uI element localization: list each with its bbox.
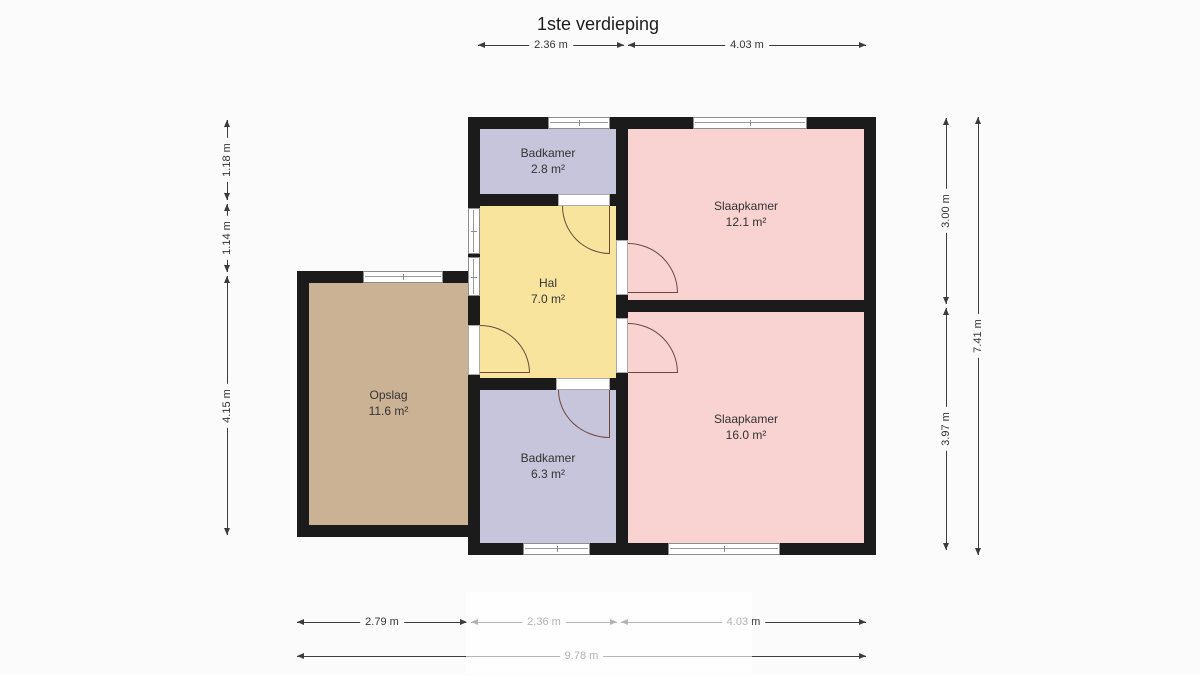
window-badkamer-top (548, 117, 610, 129)
wall-opslag-bottom (297, 525, 468, 537)
dimension-label: 2.79 m (360, 616, 404, 628)
room-area: 12.1 m² (726, 215, 767, 231)
room-name: Slaapkamer (714, 412, 778, 428)
room-area: 7.0 m² (531, 292, 565, 308)
window-hal-left-upper (468, 208, 480, 254)
dimension-right-1: 3.00 m (946, 118, 947, 304)
dimension-left-3: 4.15 m (227, 276, 228, 535)
dimension-left-2: 1.14 m (227, 204, 228, 272)
watermark-overlay (466, 592, 752, 674)
room-area: 16.0 m² (726, 428, 767, 444)
door-opening-hal-badkamer-bottom (556, 378, 610, 390)
dimension-right-2: 3.97 m (946, 308, 947, 550)
room-name: Slaapkamer (714, 199, 778, 215)
dimension-label: 1.18 m (221, 138, 233, 182)
room-opslag: Opslag 11.6 m² (309, 283, 468, 525)
wall-exterior-top (468, 117, 876, 129)
wall-exterior-right (864, 117, 876, 555)
dimension-label: 4.03 m (725, 39, 769, 51)
room-name: Opslag (369, 388, 407, 404)
window-hal-left-lower (468, 257, 480, 296)
dimension-top-left: 2.36 m (478, 45, 624, 46)
dimension-right-total: 7.41 m (978, 117, 979, 555)
dimension-left-1: 1.18 m (227, 120, 228, 200)
dimension-bottom-1: 2.79 m (297, 622, 467, 623)
dimension-label: 2.36 m (529, 39, 573, 51)
dimension-label: 4.15 m (221, 384, 233, 428)
page-title: 1ste verdieping (418, 14, 778, 35)
room-name: Badkamer (521, 451, 576, 467)
door-opening-hal-slaapkamer-bottom (616, 318, 628, 373)
dimension-top-right: 4.03 m (628, 45, 866, 46)
room-area: 6.3 m² (531, 467, 565, 483)
window-opslag-top (363, 271, 443, 283)
room-badkamer-top: Badkamer 2.8 m² (480, 129, 616, 194)
room-area: 2.8 m² (531, 162, 565, 178)
door-opening-hal-badkamer-top (558, 194, 610, 206)
door-opening-hal-opslag (468, 325, 480, 375)
dimension-label: 3.97 m (940, 407, 952, 451)
floor-plan: 1ste verdieping Badkamer 2.8 m² Slaapkam… (0, 0, 1200, 675)
dimension-label: 7.41 m (972, 314, 984, 358)
door-opening-hal-slaapkamer-top (616, 240, 628, 295)
wall-between-bedrooms (628, 300, 864, 312)
room-name: Hal (539, 276, 557, 292)
room-area: 11.6 m² (369, 404, 409, 420)
wall-opslag-left (297, 271, 309, 537)
window-slaapkamer-bottom (668, 543, 780, 555)
window-badkamer-bottom (523, 543, 590, 555)
dimension-label: 1.14 m (221, 216, 233, 260)
dimension-label: 3.00 m (940, 189, 952, 233)
window-slaapkamer-top (693, 117, 807, 129)
room-name: Badkamer (521, 146, 576, 162)
